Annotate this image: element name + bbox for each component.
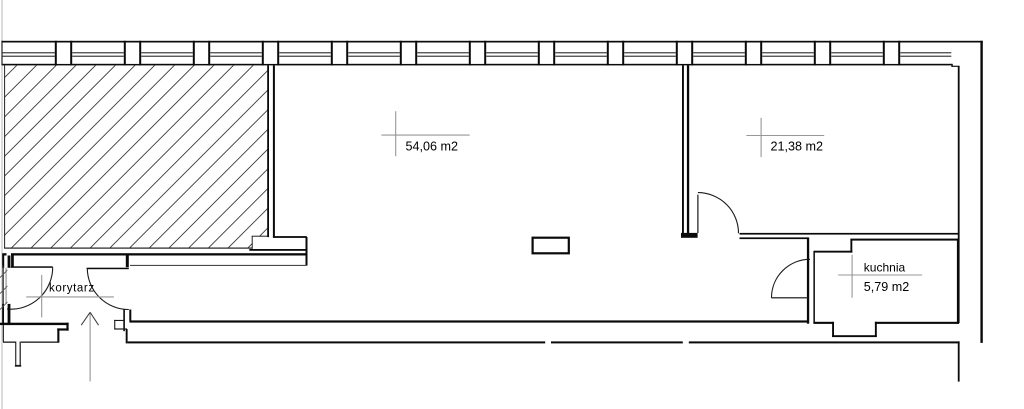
svg-text:54,06 m2: 54,06 m2 (406, 139, 459, 153)
svg-text:kuchnia: kuchnia (864, 260, 906, 274)
svg-text:korytarz: korytarz (49, 282, 95, 294)
svg-text:5,79 m2: 5,79 m2 (864, 280, 910, 294)
svg-text:21,38 m2: 21,38 m2 (771, 139, 824, 153)
